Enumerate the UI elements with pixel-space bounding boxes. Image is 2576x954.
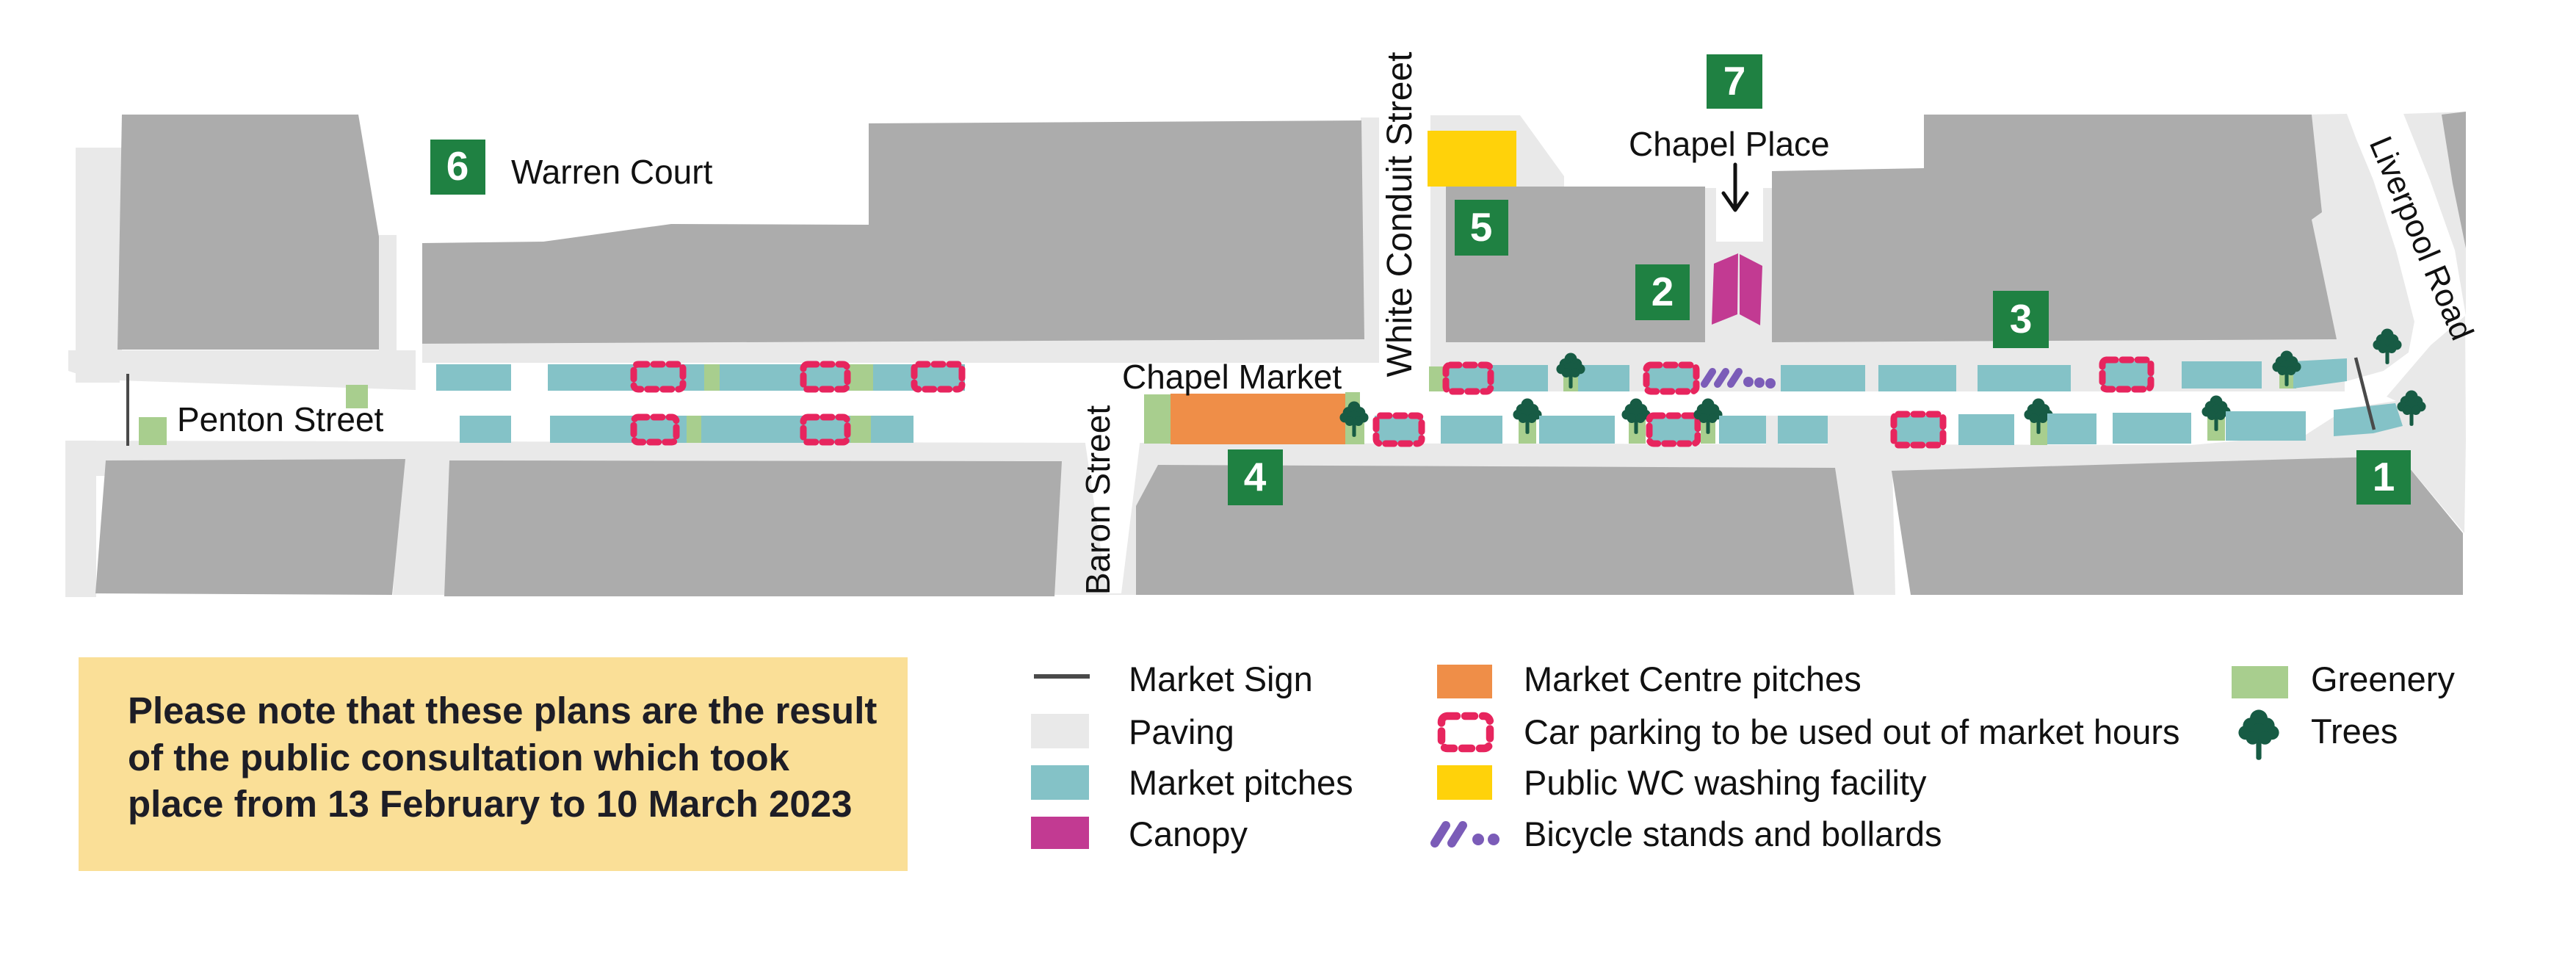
svg-text:place from 13 February to 10 M: place from 13 February to 10 March 2023 bbox=[128, 783, 852, 825]
svg-text:Market pitches: Market pitches bbox=[1129, 763, 1353, 802]
svg-text:Chapel Market: Chapel Market bbox=[1122, 358, 1342, 396]
svg-text:Bicycle stands and bollards: Bicycle stands and bollards bbox=[1524, 814, 1942, 853]
svg-text:White Conduit Street: White Conduit Street bbox=[1381, 52, 1419, 377]
svg-text:Paving: Paving bbox=[1129, 712, 1234, 751]
svg-text:6: 6 bbox=[446, 143, 469, 189]
svg-text:5: 5 bbox=[1470, 204, 1493, 250]
svg-text:Chapel Place: Chapel Place bbox=[1629, 125, 1830, 163]
svg-text:Car parking to be used out of: Car parking to be used out of market hou… bbox=[1524, 712, 2179, 751]
svg-text:7: 7 bbox=[1723, 58, 1746, 104]
svg-text:Public WC washing facility: Public WC washing facility bbox=[1524, 763, 1927, 802]
svg-text:Market Sign: Market Sign bbox=[1129, 660, 1313, 698]
svg-text:Baron Street: Baron Street bbox=[1079, 405, 1117, 595]
svg-text:Market Centre pitches: Market Centre pitches bbox=[1524, 660, 1862, 698]
svg-text:Penton Street: Penton Street bbox=[177, 400, 384, 438]
svg-text:1: 1 bbox=[2373, 454, 2395, 499]
svg-text:Warren Court: Warren Court bbox=[511, 153, 713, 191]
svg-text:4: 4 bbox=[1244, 454, 1267, 499]
svg-text:Greenery: Greenery bbox=[2311, 660, 2455, 698]
svg-text:of the public consultation whi: of the public consultation which took bbox=[128, 737, 790, 778]
svg-text:Canopy: Canopy bbox=[1129, 814, 1248, 853]
svg-text:Please note that these plans a: Please note that these plans are the res… bbox=[128, 690, 877, 731]
svg-text:Trees: Trees bbox=[2311, 712, 2398, 751]
svg-text:2: 2 bbox=[1651, 269, 1674, 314]
svg-text:3: 3 bbox=[2010, 296, 2033, 342]
